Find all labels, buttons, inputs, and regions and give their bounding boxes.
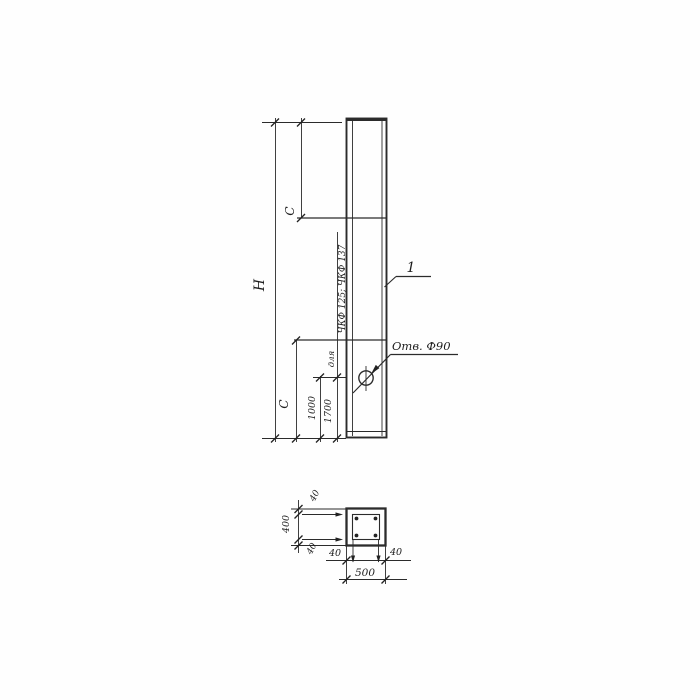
mounting-hole xyxy=(313,366,373,391)
dim-label-400: 400 xyxy=(281,515,292,534)
drawing-canvas: Н С С 1000 1700 для ЧКФ 125; ЧКФ 137 1 О… xyxy=(0,0,700,700)
rebar-dot xyxy=(374,517,378,521)
extension-arrowhead-icon xyxy=(336,512,344,516)
technical-drawing: Н С С 1000 1700 для ЧКФ 125; ЧКФ 137 1 О… xyxy=(0,0,700,700)
leader-arrowhead-icon xyxy=(371,365,379,374)
note-series-label: ЧКФ 125; ЧКФ 137 xyxy=(338,244,348,333)
elevation-view: Н С С 1000 1700 для ЧКФ 125; ЧКФ 137 1 О… xyxy=(252,118,458,443)
extension-arrowhead-icon xyxy=(351,556,355,563)
dim-label-cover-top: 40 xyxy=(308,488,323,504)
rebar-dot xyxy=(355,534,359,538)
column-outline xyxy=(347,119,387,438)
section-outline xyxy=(347,509,386,546)
section-left-dimensions: 40 400 40 xyxy=(281,488,346,557)
dimension-lines xyxy=(262,118,346,442)
item-number-label: 1 xyxy=(407,260,416,276)
rebar-dot xyxy=(355,517,359,521)
hole-callout-label: Отв. Ф90 xyxy=(392,339,451,353)
hole-callout-leader xyxy=(353,355,391,394)
dim-label-1700: 1700 xyxy=(323,399,334,423)
section-view: 40 400 40 40 40 500 xyxy=(281,488,411,584)
item-callout: 1 xyxy=(385,260,432,287)
dim-label-1000: 1000 xyxy=(307,396,318,420)
dim-label-500: 500 xyxy=(355,567,375,579)
dim-label-C-top: С xyxy=(283,206,297,215)
extension-arrowhead-icon xyxy=(376,556,380,563)
dimension-ticks xyxy=(271,119,341,443)
extension-arrowhead-icon xyxy=(336,537,344,541)
dim-label-H: Н xyxy=(252,278,268,292)
dim-label-C-bottom: С xyxy=(277,399,291,408)
note-for-label: для xyxy=(327,350,337,367)
rebar-dot xyxy=(374,534,378,538)
dim-label-cover-bottom: 40 xyxy=(305,541,320,557)
dim-label-cover-right: 40 xyxy=(389,547,402,558)
dim-label-cover-left: 40 xyxy=(328,548,341,559)
